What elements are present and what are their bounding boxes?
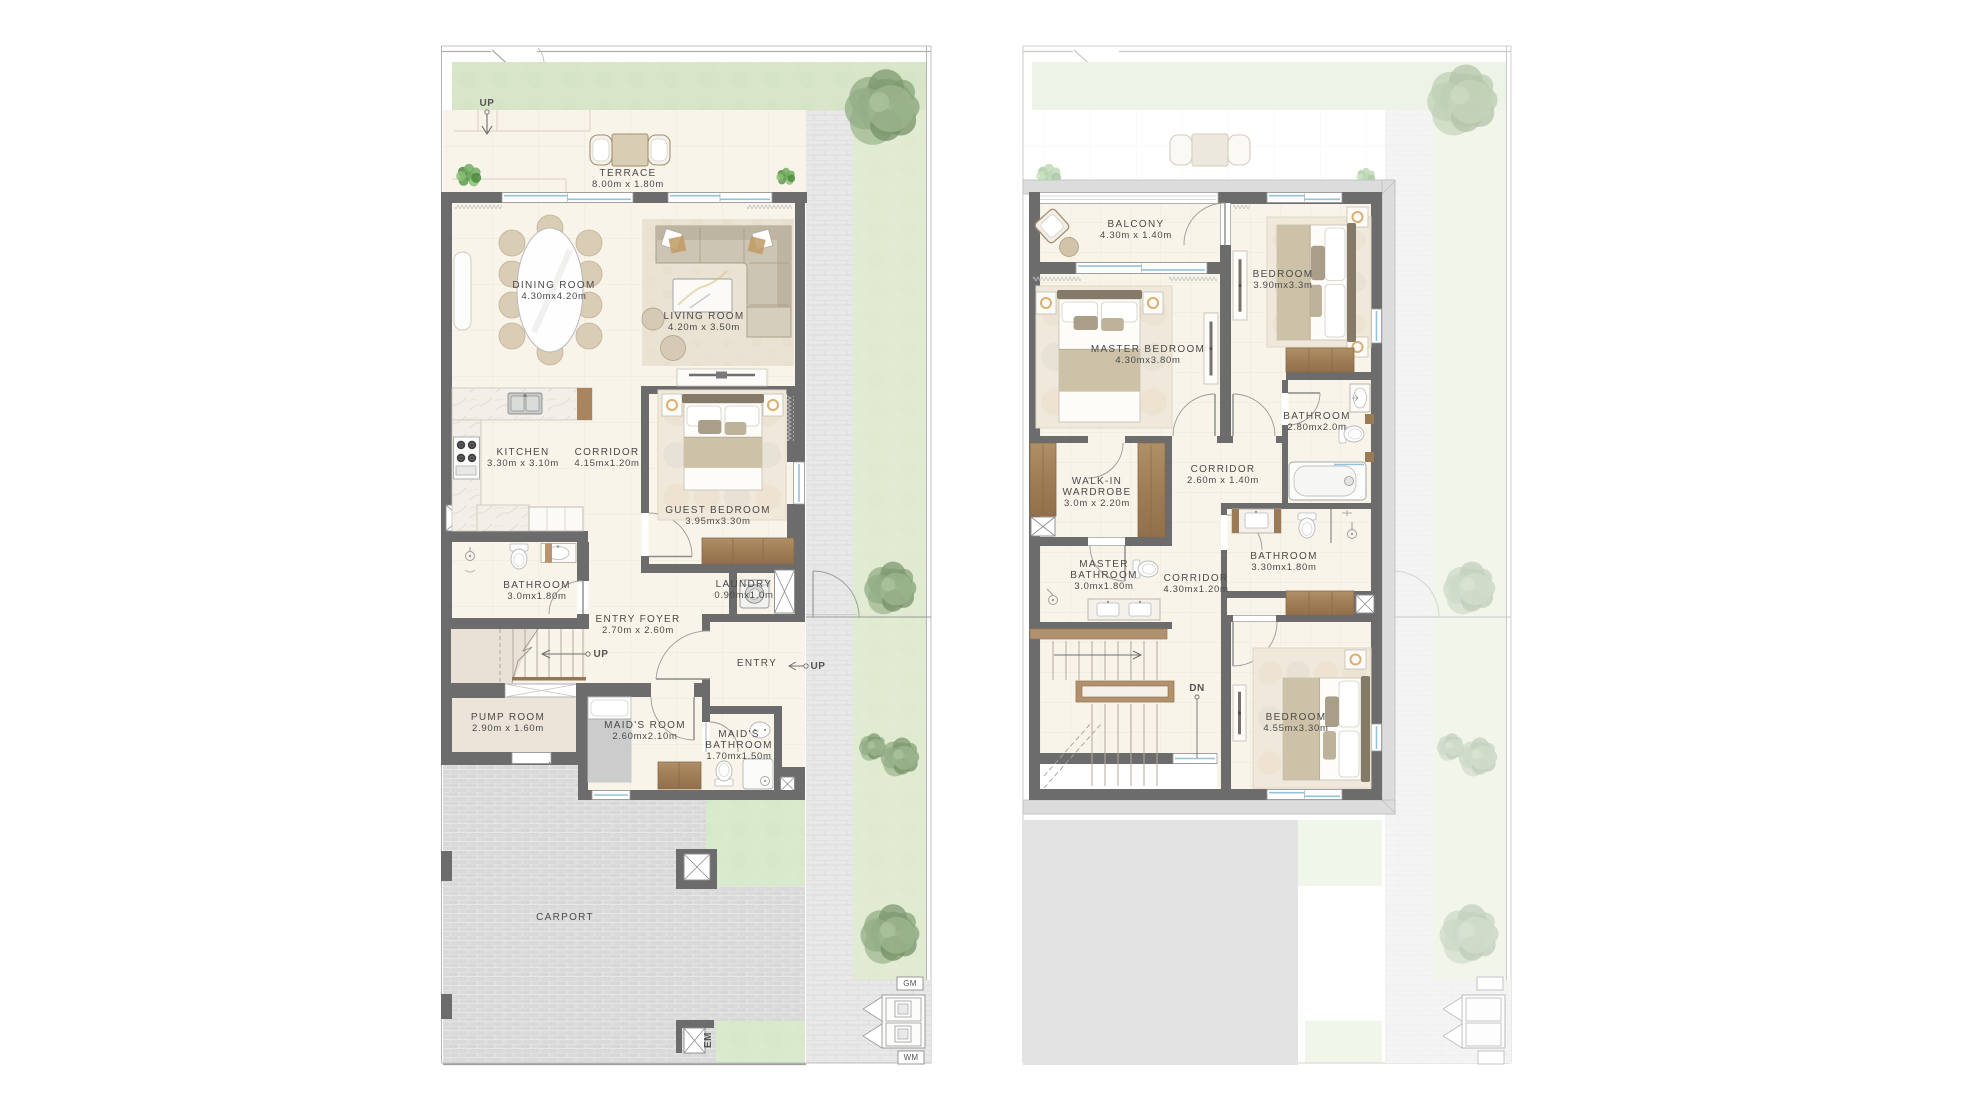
svg-text:UP: UP (480, 98, 495, 109)
svg-text:3.90mx3.3m: 3.90mx3.3m (1253, 280, 1312, 291)
svg-text:MASTER BEDROOM: MASTER BEDROOM (1091, 344, 1205, 355)
svg-text:ENTRY: ENTRY (737, 658, 777, 669)
svg-text:GUEST BEDROOM: GUEST BEDROOM (665, 505, 771, 516)
svg-text:BATHROOM: BATHROOM (1070, 570, 1137, 581)
svg-text:WARDROBE: WARDROBE (1063, 487, 1132, 498)
svg-text:LAUNDRY: LAUNDRY (716, 579, 773, 590)
svg-text:2.60mx2.10m: 2.60mx2.10m (612, 731, 677, 742)
svg-text:2.60m x 1.40m: 2.60m x 1.40m (1187, 475, 1259, 486)
svg-text:4.30mx1.20m: 4.30mx1.20m (1163, 584, 1228, 595)
svg-text:BEDROOM: BEDROOM (1253, 269, 1314, 280)
svg-text:CORRIDOR: CORRIDOR (575, 447, 640, 458)
svg-text:4.20m x 3.50m: 4.20m x 3.50m (668, 322, 740, 333)
svg-text:2.70m x 2.60m: 2.70m x 2.60m (602, 625, 674, 636)
svg-text:3.30m x 3.10m: 3.30m x 3.10m (487, 458, 559, 469)
svg-text:WALK-IN: WALK-IN (1072, 476, 1122, 487)
svg-text:CORRIDOR: CORRIDOR (1191, 464, 1256, 475)
svg-text:BATHROOM: BATHROOM (1283, 411, 1350, 422)
svg-text:4.55mx3.30m: 4.55mx3.30m (1263, 723, 1328, 734)
svg-text:1.70mx1.50m: 1.70mx1.50m (706, 751, 771, 762)
svg-text:CORRIDOR: CORRIDOR (1164, 573, 1229, 584)
svg-text:3.30mx1.80m: 3.30mx1.80m (1251, 562, 1316, 573)
svg-text:BATHROOM: BATHROOM (1250, 551, 1317, 562)
svg-text:CARPORT: CARPORT (536, 912, 594, 923)
svg-text:4.30mx4.20m: 4.30mx4.20m (521, 291, 586, 302)
svg-text:4.15mx1.20m: 4.15mx1.20m (574, 458, 639, 469)
svg-text:KITCHEN: KITCHEN (497, 447, 550, 458)
svg-text:MASTER: MASTER (1079, 559, 1128, 570)
svg-text:DN: DN (1189, 683, 1204, 694)
svg-text:UP: UP (811, 661, 826, 672)
svg-text:3.95mx3.30m: 3.95mx3.30m (685, 516, 750, 527)
svg-text:MAID'S: MAID'S (718, 729, 759, 740)
svg-text:BATHROOM: BATHROOM (705, 740, 772, 751)
svg-text:BEDROOM: BEDROOM (1266, 712, 1327, 723)
svg-text:3.0mx1.80m: 3.0mx1.80m (1074, 581, 1133, 592)
svg-text:LIVING ROOM: LIVING ROOM (664, 311, 745, 322)
svg-text:DINING ROOM: DINING ROOM (512, 280, 595, 291)
svg-text:4.30mx3.80m: 4.30mx3.80m (1115, 355, 1180, 366)
svg-text:ENTRY FOYER: ENTRY FOYER (595, 614, 680, 625)
svg-text:WM: WM (904, 1053, 919, 1062)
svg-text:BATHROOM: BATHROOM (503, 580, 570, 591)
svg-text:3.0m x 2.20m: 3.0m x 2.20m (1064, 498, 1130, 509)
svg-text:2.80mx2.0m: 2.80mx2.0m (1287, 422, 1346, 433)
svg-text:8.00m x 1.80m: 8.00m x 1.80m (592, 179, 664, 190)
svg-text:4.30m x 1.40m: 4.30m x 1.40m (1100, 230, 1172, 241)
svg-text:0.90mx1.0m: 0.90mx1.0m (714, 590, 773, 601)
svg-text:MAID'S ROOM: MAID'S ROOM (604, 720, 686, 731)
svg-text:3.0mx1.80m: 3.0mx1.80m (507, 591, 566, 602)
svg-text:UP: UP (594, 649, 609, 660)
svg-text:GM: GM (903, 979, 917, 988)
svg-text:BALCONY: BALCONY (1108, 219, 1165, 230)
svg-text:EM: EM (703, 1032, 714, 1048)
svg-text:PUMP ROOM: PUMP ROOM (471, 712, 545, 723)
svg-text:2.90m x 1.60m: 2.90m x 1.60m (472, 723, 544, 734)
svg-text:TERRACE: TERRACE (600, 168, 657, 179)
